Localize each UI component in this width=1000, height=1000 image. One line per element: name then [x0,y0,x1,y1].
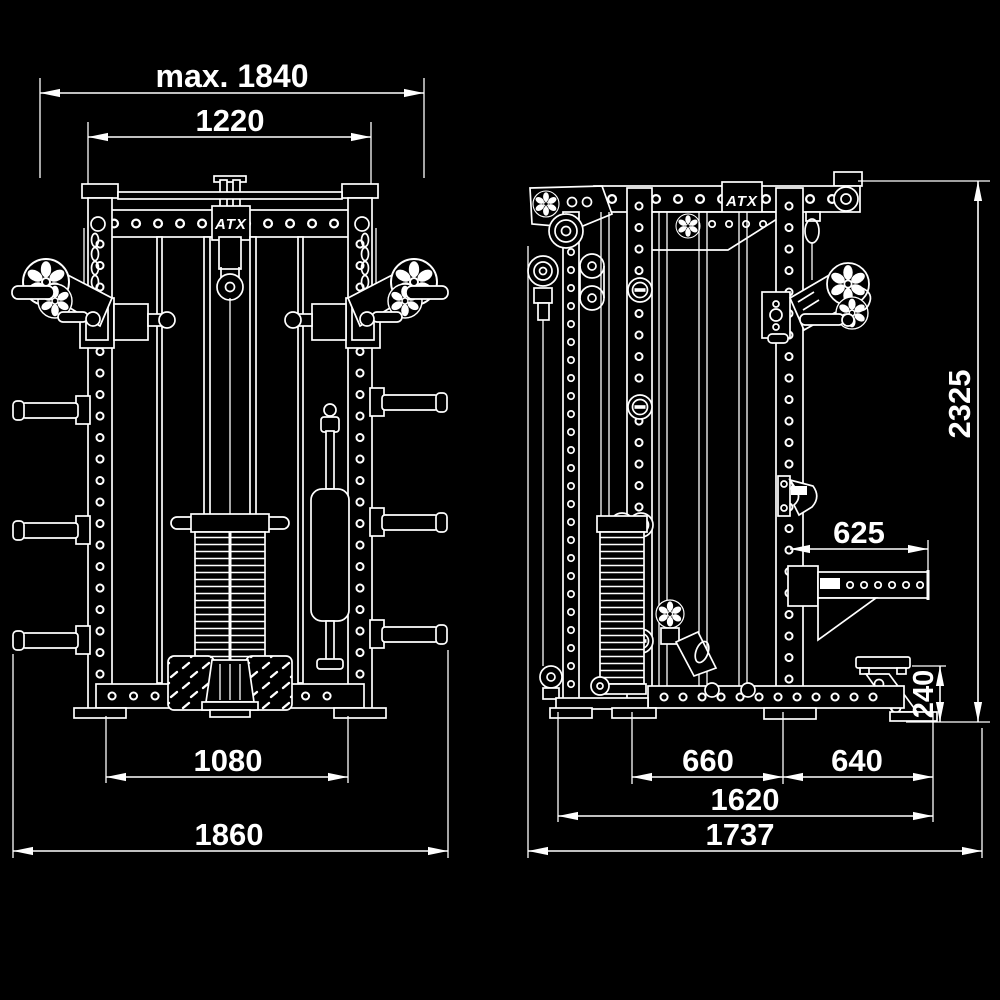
carabiner-icon [805,219,819,243]
adjuster-knob [628,395,652,419]
dim-label-240: 240 [908,670,940,718]
dim-label-625: 625 [833,515,885,550]
dim-side-front-base: 660 [632,712,783,784]
spotter-arm [788,566,928,640]
storage-horns-right [370,388,447,648]
dim-label-2325: 2325 [942,370,977,439]
brand-logo-side: ATX [725,193,758,210]
adjuster-knob [628,278,652,302]
dim-side-overall-height: 2325 [858,181,990,722]
side-weight-stack [597,516,647,694]
dim-side-rear-base: 640 [783,712,933,822]
center-pulley [217,274,243,300]
dim-side-overall-depth: 1737 [528,246,982,858]
dim-rear-foot-height: 240 [908,666,946,722]
technical-drawing-page: max. 1840 1220 [0,0,1000,1000]
damper-cylinder [311,404,349,669]
dim-front-top-width: 1220 [88,103,371,186]
dim-label-660: 660 [682,743,734,778]
dim-label-1220: 1220 [196,103,265,138]
dim-label-1080: 1080 [194,743,263,778]
dim-spotter-arm: 625 [790,515,928,570]
atx-logo-plate-front: ATX [212,206,250,240]
side-view: ATX [528,172,990,858]
storage-horns-left [13,396,90,654]
gym-rack-technical-drawing: max. 1840 1220 [0,0,1000,1000]
dim-label-1737: 1737 [706,817,775,852]
dim-label-640: 640 [831,743,883,778]
dim-label-1620: 1620 [711,782,780,817]
side-cable-column [528,212,604,708]
brand-logo-front: ATX [214,216,247,233]
dim-label-max-1840: max. 1840 [155,58,308,94]
dim-front-base-inner: 1080 [106,716,348,783]
dim-label-1860: 1860 [195,817,264,852]
atx-logo-plate-side: ATX [722,182,762,214]
front-view: max. 1840 1220 [12,58,448,858]
